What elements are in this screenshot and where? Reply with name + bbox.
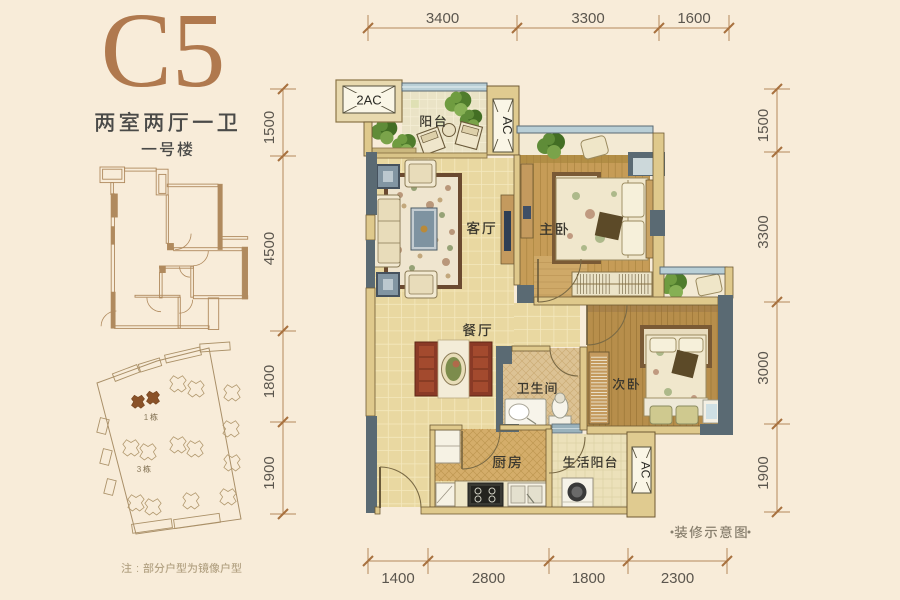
svg-text:2800: 2800 — [472, 570, 505, 587]
svg-text:AC: AC — [639, 462, 653, 479]
svg-text:4500: 4500 — [261, 232, 278, 265]
svg-text:1: 1 — [144, 413, 149, 422]
svg-text:1400: 1400 — [381, 570, 414, 587]
svg-text:1900: 1900 — [261, 456, 278, 489]
svg-text:1600: 1600 — [677, 10, 710, 27]
svg-text:2AC: 2AC — [356, 93, 381, 108]
svg-text:1800: 1800 — [572, 570, 605, 587]
svg-text::: : — [136, 563, 139, 575]
svg-text:3000: 3000 — [755, 351, 772, 384]
svg-text:3: 3 — [137, 465, 142, 474]
svg-text:3400: 3400 — [426, 10, 459, 27]
svg-text:1500: 1500 — [261, 111, 278, 144]
svg-text:AC: AC — [500, 116, 515, 134]
svg-text:C5: C5 — [101, 0, 226, 110]
svg-text:1800: 1800 — [261, 365, 278, 398]
svg-text:3300: 3300 — [755, 215, 772, 248]
svg-text:3300: 3300 — [571, 10, 604, 27]
svg-text:1900: 1900 — [755, 456, 772, 489]
svg-text:1500: 1500 — [755, 109, 772, 142]
svg-text:2300: 2300 — [661, 570, 694, 587]
